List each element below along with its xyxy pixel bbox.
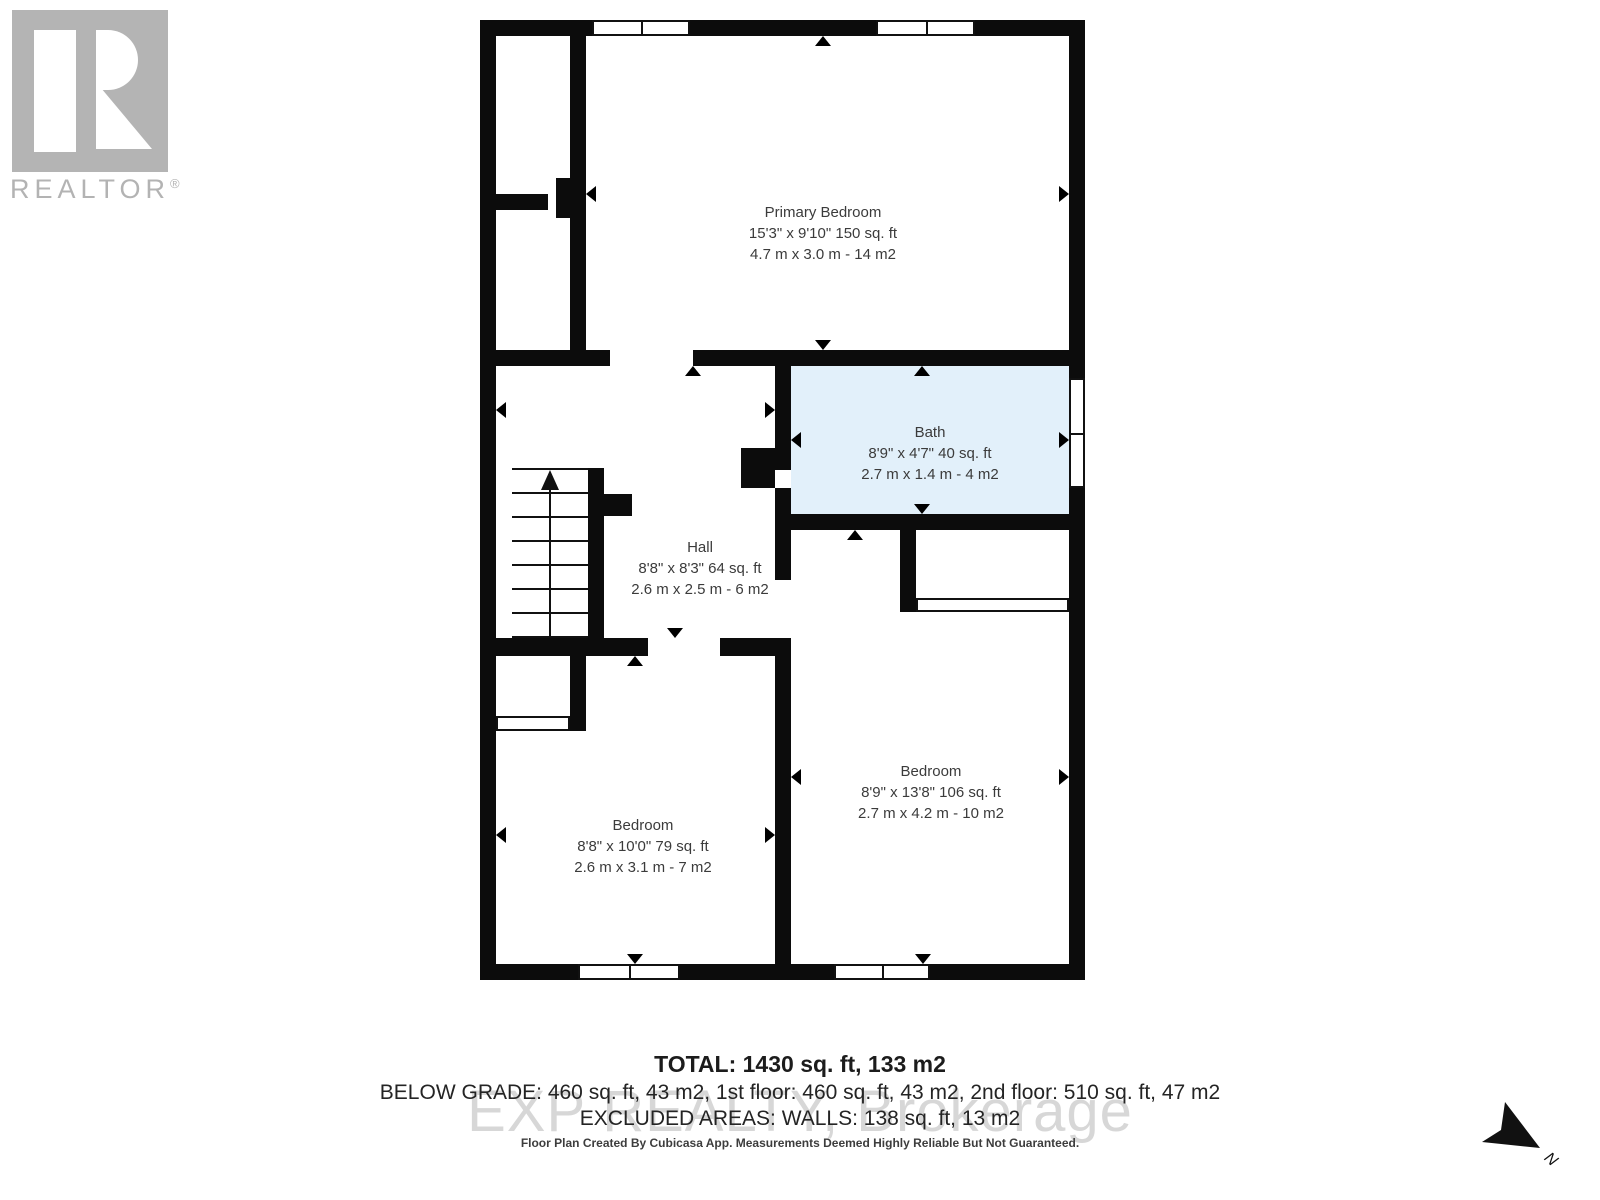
- realtor-logo: [12, 10, 168, 172]
- room-dims-imperial: 8'8" x 8'3" 64 sq. ft: [631, 558, 769, 579]
- realtor-word: REALTOR: [10, 174, 170, 204]
- dimension-arrow-icon: [815, 340, 831, 350]
- wall-segment: [496, 194, 548, 210]
- room-dims-metric: 2.7 m x 4.2 m - 10 m2: [858, 803, 1004, 824]
- realtor-r-icon: [12, 10, 168, 172]
- wall-segment: [693, 350, 1069, 366]
- wall-segment: [496, 350, 610, 366]
- wall-segment: [775, 638, 791, 964]
- room-label-bedroom-left: Bedroom 8'8" x 10'0" 79 sq. ft 2.6 m x 3…: [574, 815, 712, 878]
- wall-segment: [720, 638, 775, 656]
- room-dims-metric: 2.6 m x 2.5 m - 6 m2: [631, 579, 769, 600]
- wall-segment: [791, 514, 1069, 530]
- dimension-arrow-icon: [1059, 432, 1069, 448]
- room-name: Bath: [861, 422, 999, 443]
- disclaimer-text: Floor Plan Created By Cubicasa App. Meas…: [0, 1136, 1600, 1150]
- room-name: Bedroom: [858, 761, 1004, 782]
- wall-segment: [480, 20, 496, 980]
- dimension-arrow-icon: [914, 504, 930, 514]
- room-dims-imperial: 15'3" x 9'10" 150 sq. ft: [749, 223, 897, 244]
- room-dims-metric: 2.6 m x 3.1 m - 7 m2: [574, 857, 712, 878]
- dimension-arrow-icon: [765, 402, 775, 418]
- wall-segment: [900, 530, 916, 612]
- north-label: N: [1541, 1149, 1561, 1170]
- dimension-arrow-icon: [765, 827, 775, 843]
- dimension-arrow-icon: [627, 954, 643, 964]
- room-label-hall: Hall 8'8" x 8'3" 64 sq. ft 2.6 m x 2.5 m…: [631, 537, 769, 600]
- window-glyph: [592, 20, 690, 36]
- room-name: Bedroom: [574, 815, 712, 836]
- room-dims-imperial: 8'9" x 4'7" 40 sq. ft: [861, 443, 999, 464]
- dimension-arrow-icon: [791, 432, 801, 448]
- dimension-arrow-icon: [847, 530, 863, 540]
- realtor-wordmark: REALTOR®: [10, 174, 200, 205]
- room-dims-imperial: 8'8" x 10'0" 79 sq. ft: [574, 836, 712, 857]
- wall-segment: [570, 656, 586, 731]
- room-dims-metric: 4.7 m x 3.0 m - 14 m2: [749, 244, 897, 265]
- dimension-arrow-icon: [1059, 186, 1069, 202]
- window-glyph: [834, 964, 930, 980]
- door-jamb: [741, 448, 775, 488]
- dimension-arrow-icon: [815, 36, 831, 46]
- closet-door-panel: [916, 598, 1069, 612]
- wall-segment: [775, 488, 791, 580]
- wall-segment: [496, 638, 648, 656]
- dimension-arrow-icon: [1059, 769, 1069, 785]
- dimension-arrow-icon: [685, 366, 701, 376]
- dimension-arrow-icon: [915, 954, 931, 964]
- area-summary: TOTAL: 1430 sq. ft, 133 m2 BELOW GRADE: …: [0, 1051, 1600, 1131]
- dimension-arrow-icon: [791, 769, 801, 785]
- staircase: [512, 468, 588, 638]
- dimension-arrow-icon: [627, 656, 643, 666]
- room-name: Primary Bedroom: [749, 202, 897, 223]
- wall-segment: [480, 964, 1085, 980]
- room-label-primary-bedroom: Primary Bedroom 15'3" x 9'10" 150 sq. ft…: [749, 202, 897, 265]
- dimension-arrow-icon: [586, 186, 596, 202]
- room-label-bath: Bath 8'9" x 4'7" 40 sq. ft 2.7 m x 1.4 m…: [861, 422, 999, 485]
- room-name: Hall: [631, 537, 769, 558]
- floorplan: Primary Bedroom 15'3" x 9'10" 150 sq. ft…: [480, 20, 1085, 980]
- window-glyph: [876, 20, 975, 36]
- dimension-arrow-icon: [496, 827, 506, 843]
- dimension-arrow-icon: [667, 628, 683, 638]
- stairs-up-arrow-icon: [541, 470, 559, 490]
- wall-segment: [480, 20, 1085, 36]
- wall-segment: [1069, 20, 1085, 980]
- door-jamb: [556, 178, 586, 218]
- window-glyph: [1069, 378, 1085, 488]
- room-label-bedroom-right: Bedroom 8'9" x 13'8" 106 sq. ft 2.7 m x …: [858, 761, 1004, 824]
- floorplan-page: REALTOR®: [0, 0, 1600, 1200]
- closet-door-panel: [496, 716, 570, 731]
- floor-breakdown-text: BELOW GRADE: 460 sq. ft, 43 m2, 1st floo…: [0, 1081, 1600, 1105]
- registered-mark: ®: [170, 176, 180, 191]
- window-glyph: [578, 964, 680, 980]
- total-area-text: TOTAL: 1430 sq. ft, 133 m2: [0, 1051, 1600, 1078]
- dimension-arrow-icon: [914, 366, 930, 376]
- room-dims-imperial: 8'9" x 13'8" 106 sq. ft: [858, 782, 1004, 803]
- dimension-arrow-icon: [496, 402, 506, 418]
- room-dims-metric: 2.7 m x 1.4 m - 4 m2: [861, 464, 999, 485]
- excluded-areas-text: EXCLUDED AREAS: WALLS: 138 sq. ft, 13 m2: [0, 1107, 1600, 1131]
- wall-stub: [598, 494, 632, 516]
- wall-segment: [775, 366, 791, 470]
